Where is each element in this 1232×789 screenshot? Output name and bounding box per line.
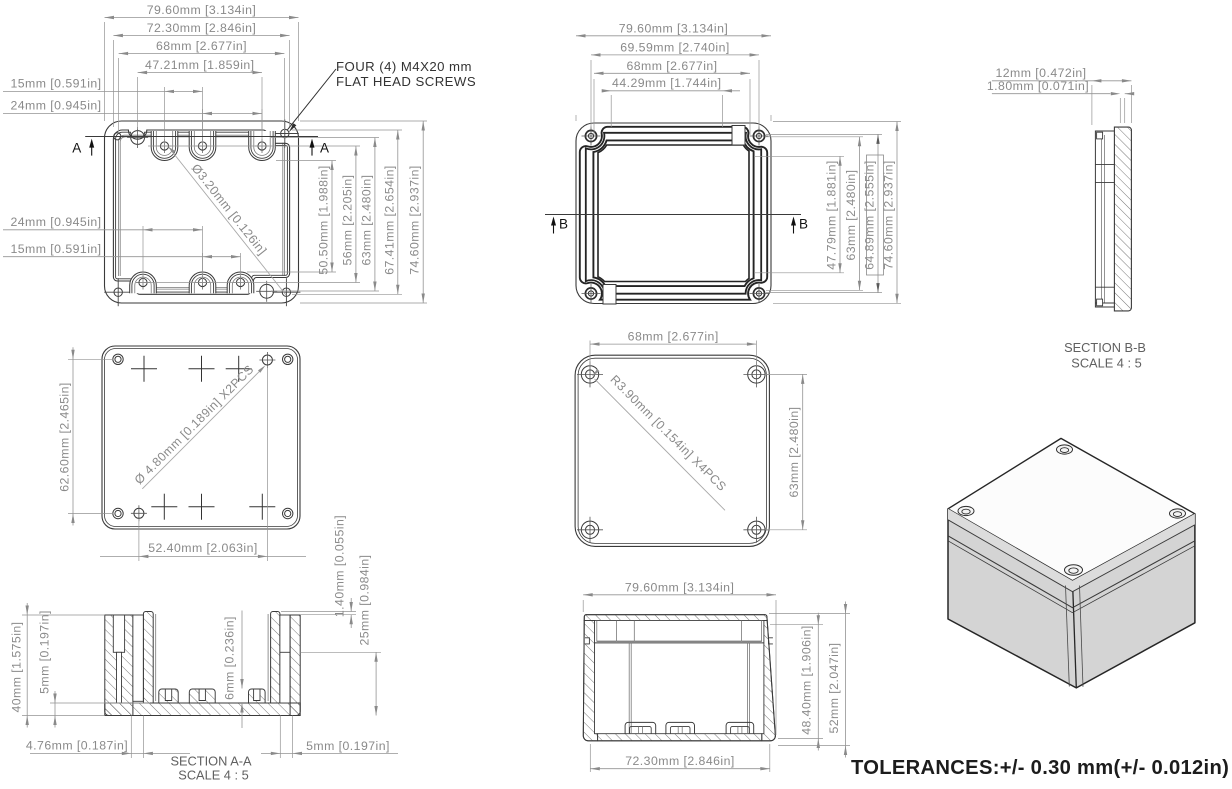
svg-text:67.41mm [2.654in]: 67.41mm [2.654in] <box>382 165 396 275</box>
svg-text:68mm [2.677in]: 68mm [2.677in] <box>626 59 717 73</box>
svg-text:50.50mm [1.988in]: 50.50mm [1.988in] <box>317 165 331 275</box>
svg-text:1.40mm [0.055in]: 1.40mm [0.055in] <box>332 515 346 617</box>
svg-text:A: A <box>72 141 81 156</box>
svg-text:47.21mm [1.859in]: 47.21mm [1.859in] <box>145 58 255 72</box>
svg-text:69.59mm [2.740in]: 69.59mm [2.740in] <box>620 40 730 54</box>
svg-text:5mm [0.197in]: 5mm [0.197in] <box>37 610 51 694</box>
svg-text:74.60mm [2.937in]: 74.60mm [2.937in] <box>882 160 896 270</box>
svg-text:79.60mm [3.134in]: 79.60mm [3.134in] <box>619 21 729 35</box>
svg-text:62.60mm [2.465in]: 62.60mm [2.465in] <box>58 382 72 492</box>
svg-text:64.89mm [2.555in]: 64.89mm [2.555in] <box>863 160 877 270</box>
svg-text:68mm [2.677in]: 68mm [2.677in] <box>156 39 247 53</box>
svg-text:SECTION A-A: SECTION A-A <box>170 754 252 769</box>
svg-text:68mm [2.677in]: 68mm [2.677in] <box>628 330 719 344</box>
svg-text:5mm [0.197in]: 5mm [0.197in] <box>306 739 390 753</box>
svg-text:63mm [2.480in]: 63mm [2.480in] <box>844 169 858 260</box>
svg-text:FOUR (4) M4X20 mm: FOUR (4) M4X20 mm <box>336 59 472 74</box>
svg-text:40mm [1.575in]: 40mm [1.575in] <box>10 621 24 712</box>
svg-text:74.60mm [2.937in]: 74.60mm [2.937in] <box>408 165 422 275</box>
svg-text:52.40mm [2.063in]: 52.40mm [2.063in] <box>148 541 258 555</box>
svg-text:72.30mm [2.846in]: 72.30mm [2.846in] <box>625 754 735 768</box>
svg-text:63mm [2.480in]: 63mm [2.480in] <box>359 174 373 265</box>
svg-text:44.29mm [1.744in]: 44.29mm [1.744in] <box>612 76 722 90</box>
svg-text:SCALE 4 : 5: SCALE 4 : 5 <box>1071 356 1141 371</box>
svg-text:15mm [0.591in]: 15mm [0.591in] <box>10 77 101 91</box>
svg-text:56mm [2.205in]: 56mm [2.205in] <box>340 174 354 265</box>
svg-text:15mm [0.591in]: 15mm [0.591in] <box>10 242 101 256</box>
svg-text:TOLERANCES:+/- 0.30 mm(+/- 0.0: TOLERANCES:+/- 0.30 mm(+/- 0.012in) <box>851 757 1229 779</box>
svg-text:A: A <box>320 141 329 156</box>
svg-text:48.40mm [1.906in]: 48.40mm [1.906in] <box>800 625 814 735</box>
svg-text:B: B <box>559 217 568 232</box>
svg-text:B: B <box>799 217 808 232</box>
svg-text:24mm [0.945in]: 24mm [0.945in] <box>10 215 101 229</box>
svg-text:72.30mm [2.846in]: 72.30mm [2.846in] <box>147 21 257 35</box>
svg-text:52mm [2.047in]: 52mm [2.047in] <box>827 642 841 733</box>
svg-text:SECTION B-B: SECTION B-B <box>1064 340 1146 355</box>
svg-text:4.76mm [0.187in]: 4.76mm [0.187in] <box>26 739 128 753</box>
svg-text:25mm [0.984in]: 25mm [0.984in] <box>357 554 371 645</box>
svg-text:FLAT HEAD SCREWS: FLAT HEAD SCREWS <box>336 74 476 89</box>
svg-text:SCALE 4 : 5: SCALE 4 : 5 <box>178 768 248 783</box>
svg-text:47.79mm [1.881in]: 47.79mm [1.881in] <box>825 160 839 270</box>
svg-text:1.80mm [0.071in]: 1.80mm [0.071in] <box>987 79 1089 93</box>
svg-text:63mm [2.480in]: 63mm [2.480in] <box>787 406 801 497</box>
svg-text:12mm [0.472in]: 12mm [0.472in] <box>995 66 1086 80</box>
svg-text:79.60mm [3.134in]: 79.60mm [3.134in] <box>625 580 735 594</box>
svg-text:79.60mm [3.134in]: 79.60mm [3.134in] <box>147 3 257 17</box>
svg-text:24mm [0.945in]: 24mm [0.945in] <box>10 99 101 113</box>
svg-text:6mm [0.236in]: 6mm [0.236in] <box>223 616 237 700</box>
